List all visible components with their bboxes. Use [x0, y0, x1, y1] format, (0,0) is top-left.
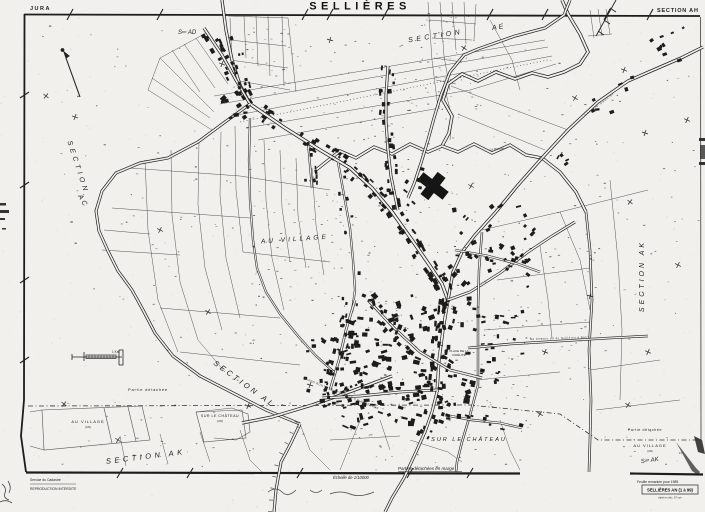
svg-text:Partie détachée: Partie détachée [128, 387, 168, 392]
svg-text:REPRODUCTION INTERDITE: REPRODUCTION INTERDITE [30, 487, 77, 491]
svg-text:Feuille remaniée pour 1989: Feuille remaniée pour 1989 [637, 480, 678, 484]
svg-text:édité en déc. 97 voir: édité en déc. 97 voir [658, 496, 681, 500]
svg-text:JURA: JURA [30, 6, 51, 12]
svg-text:AU VILLAGE: AU VILLAGE [71, 419, 104, 424]
svg-text:AU VILLAGE: AU VILLAGE [633, 443, 666, 448]
svg-text:SECTION AK: SECTION AK [639, 240, 646, 312]
svg-text:SUR LE CHÂTEAU: SUR LE CHÂTEAU [201, 414, 239, 418]
svg-text:SELLIÈRES AN (1 à 99): SELLIÈRES AN (1 à 99) [647, 488, 694, 493]
svg-text:(AN): (AN) [217, 419, 223, 423]
svg-text:Son AD: Son AD [178, 29, 197, 36]
svg-text:SECTION AH: SECTION AH [657, 8, 699, 14]
svg-text:1 Km: 1 Km [112, 350, 120, 354]
svg-text:FIDÉLITÉ: FIDÉLITÉ [452, 352, 465, 357]
svg-text:Partie détachée: Partie détachée [628, 428, 662, 432]
svg-text:(AN): (AN) [647, 449, 652, 453]
svg-text:SUR LE CHÂTEAU: SUR LE CHÂTEAU [431, 436, 507, 443]
svg-text:Parties détachées en marge: Parties détachées en marge [398, 466, 455, 471]
svg-text:Échelle de 1/10000: Échelle de 1/10000 [333, 475, 370, 480]
svg-text:(AN): (AN) [85, 425, 91, 429]
svg-text:Service du Cadastre: Service du Cadastre [30, 478, 61, 482]
svg-text:SELLIÈRES: SELLIÈRES [309, 0, 411, 13]
